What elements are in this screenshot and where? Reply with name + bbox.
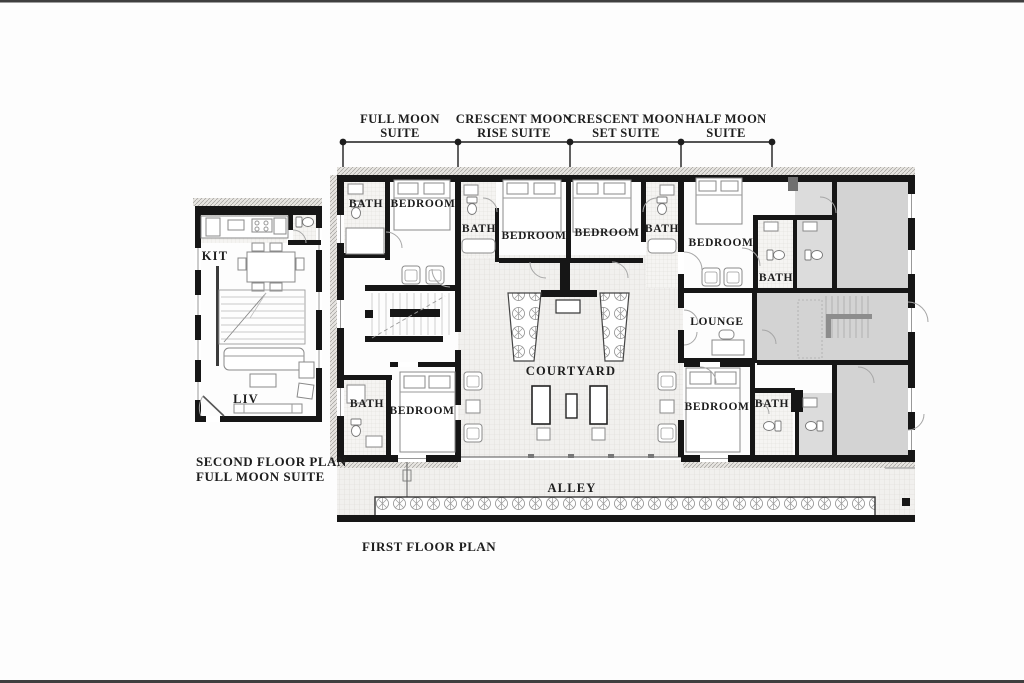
room-label-bath-5: BATH: [350, 398, 384, 410]
room-label-bedroom-3: BEDROOM: [575, 227, 640, 239]
room-label-bath-3: BATH: [645, 223, 679, 235]
toilet: [296, 217, 314, 227]
armchair: [426, 266, 444, 284]
side-table: [466, 400, 480, 413]
page-top-edge-line: [0, 0, 1024, 3]
bed: [573, 180, 631, 232]
second-floor-caption-line1: SECOND FLOOR PLAN: [196, 454, 347, 469]
room-label-bath-1: BATH: [349, 198, 383, 210]
armchair: [464, 424, 482, 442]
room-label-bath-6: BATH: [755, 398, 789, 410]
floor-plan-page: FULL MOON SUITE CRESCENT MOON RISE SUITE…: [0, 0, 1024, 683]
room-label-bedroom-2: BEDROOM: [502, 230, 567, 242]
room-label-bath-4: BATH: [759, 272, 793, 284]
suite-label-full-moon-line1: FULL MOON: [360, 112, 440, 126]
dimension-dot: [455, 139, 462, 146]
dimension-dot: [678, 139, 685, 146]
second-floor-plan: KIT LIV: [193, 198, 322, 422]
suite-label-crescent-set-line1: CRESCENT MOON: [568, 112, 684, 126]
lounger: [590, 386, 607, 424]
suite-label-half-moon-line1: HALF MOON: [685, 112, 766, 126]
dining-table: [238, 243, 304, 291]
stairs: [219, 290, 305, 344]
armchair: [402, 266, 420, 284]
suite-label-crescent-set-line2: SET SUITE: [592, 126, 660, 140]
armchair: [724, 268, 742, 286]
suite-label-crescent-rise-line2: RISE SUITE: [477, 126, 551, 140]
suite-label-crescent-rise-line1: CRESCENT MOON: [456, 112, 572, 126]
room-label-liv: LIV: [233, 392, 259, 406]
dimension-dot: [769, 139, 776, 146]
suite-label-half-moon-line2: SUITE: [706, 126, 746, 140]
room-label-alley: ALLEY: [547, 481, 596, 495]
lounge-chair: [719, 330, 734, 339]
first-floor-caption: FIRST FLOOR PLAN: [362, 539, 496, 554]
armchair: [658, 372, 676, 390]
room-label-bedroom-6: BEDROOM: [685, 401, 750, 413]
lounger: [532, 386, 550, 424]
bed: [696, 178, 742, 224]
room-label-bedroom-1: BEDROOM: [391, 198, 456, 210]
room-label-lounge: LOUNGE: [690, 316, 743, 328]
suite-label-full-moon-line2: SUITE: [380, 126, 420, 140]
suite-dimension-lines: FULL MOON SUITE CRESCENT MOON RISE SUITE…: [340, 112, 776, 167]
room-label-courtyard: COURTYARD: [526, 364, 616, 378]
dimension-dot: [340, 139, 347, 146]
armchair: [658, 424, 676, 442]
armchair: [702, 268, 720, 286]
room-label-kit: KIT: [202, 249, 229, 263]
lounge-desk: [712, 340, 744, 355]
roof-hatch-strip: [337, 167, 915, 175]
armchair: [464, 372, 482, 390]
second-floor-caption-line2: FULL MOON SUITE: [196, 469, 325, 484]
kitchen-counter: [201, 216, 288, 238]
room-label-bath-2: BATH: [462, 223, 496, 235]
entry-door-leaf: [203, 396, 224, 416]
side-table: [660, 400, 674, 413]
bed: [503, 180, 561, 232]
room-label-bedroom-4: BEDROOM: [689, 237, 754, 249]
room-label-bedroom-5: BEDROOM: [390, 405, 455, 417]
stairwell-left: [365, 293, 449, 342]
dimension-dot: [567, 139, 574, 146]
first-floor-plan: BATH BEDROOM BATH BEDROOM BEDROOM BATH B…: [330, 167, 928, 522]
floor-plan-drawing: FULL MOON SUITE CRESCENT MOON RISE SUITE…: [0, 0, 1024, 683]
alley-planter: [375, 497, 875, 516]
